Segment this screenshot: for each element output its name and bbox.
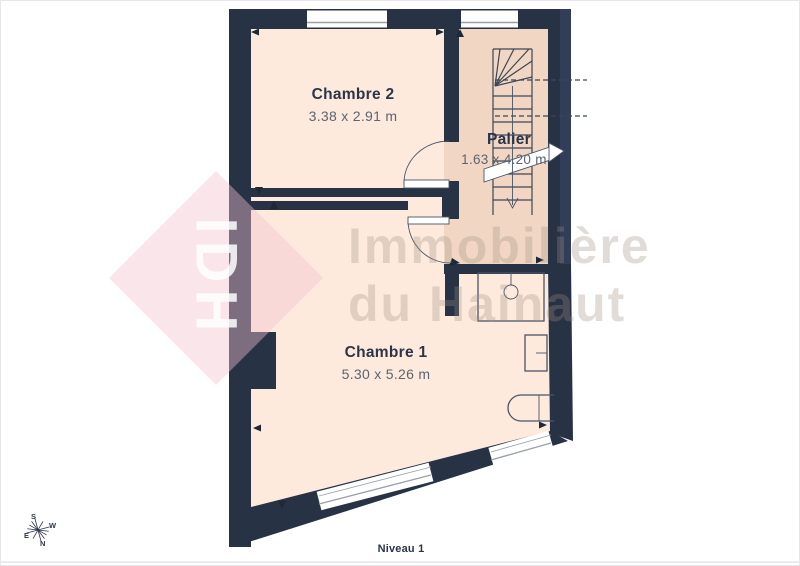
chambre1-dims: 5.30 x 5.26 m [342, 366, 431, 382]
compass-rays [23, 515, 52, 544]
top-window-1 [307, 11, 387, 28]
top-window-2 [461, 11, 518, 28]
level-label: Niveau 1 [378, 543, 425, 555]
compass-rose: S W E N [23, 512, 57, 548]
chambre2-bottom-wall [251, 188, 459, 197]
palier-label: Palier [487, 131, 531, 148]
floorplan-page: IDH Immobilière du Hainaut Chambre 2 3.3… [0, 0, 800, 566]
compass-north: N [40, 539, 45, 548]
chambre1-label: Chambre 1 [345, 344, 428, 361]
palier-dims: 1.63 x 4.20 m [461, 152, 547, 167]
chambre2-dims: 3.38 x 2.91 m [309, 108, 398, 124]
floor-plan: IDH Immobilière du Hainaut Chambre 2 3.3… [1, 1, 800, 566]
compass-east: E [24, 531, 29, 540]
chambre2-palier-wall-upper [444, 29, 459, 142]
watermark-logo-text: IDH [184, 218, 249, 339]
compass-south: S [31, 512, 36, 521]
compass-west: W [49, 521, 57, 530]
watermark-line2: du Hainaut [348, 276, 626, 332]
chambre2-label: Chambre 2 [312, 86, 395, 103]
top-wall [229, 9, 571, 29]
watermark-line1: Immobilière [348, 218, 651, 274]
